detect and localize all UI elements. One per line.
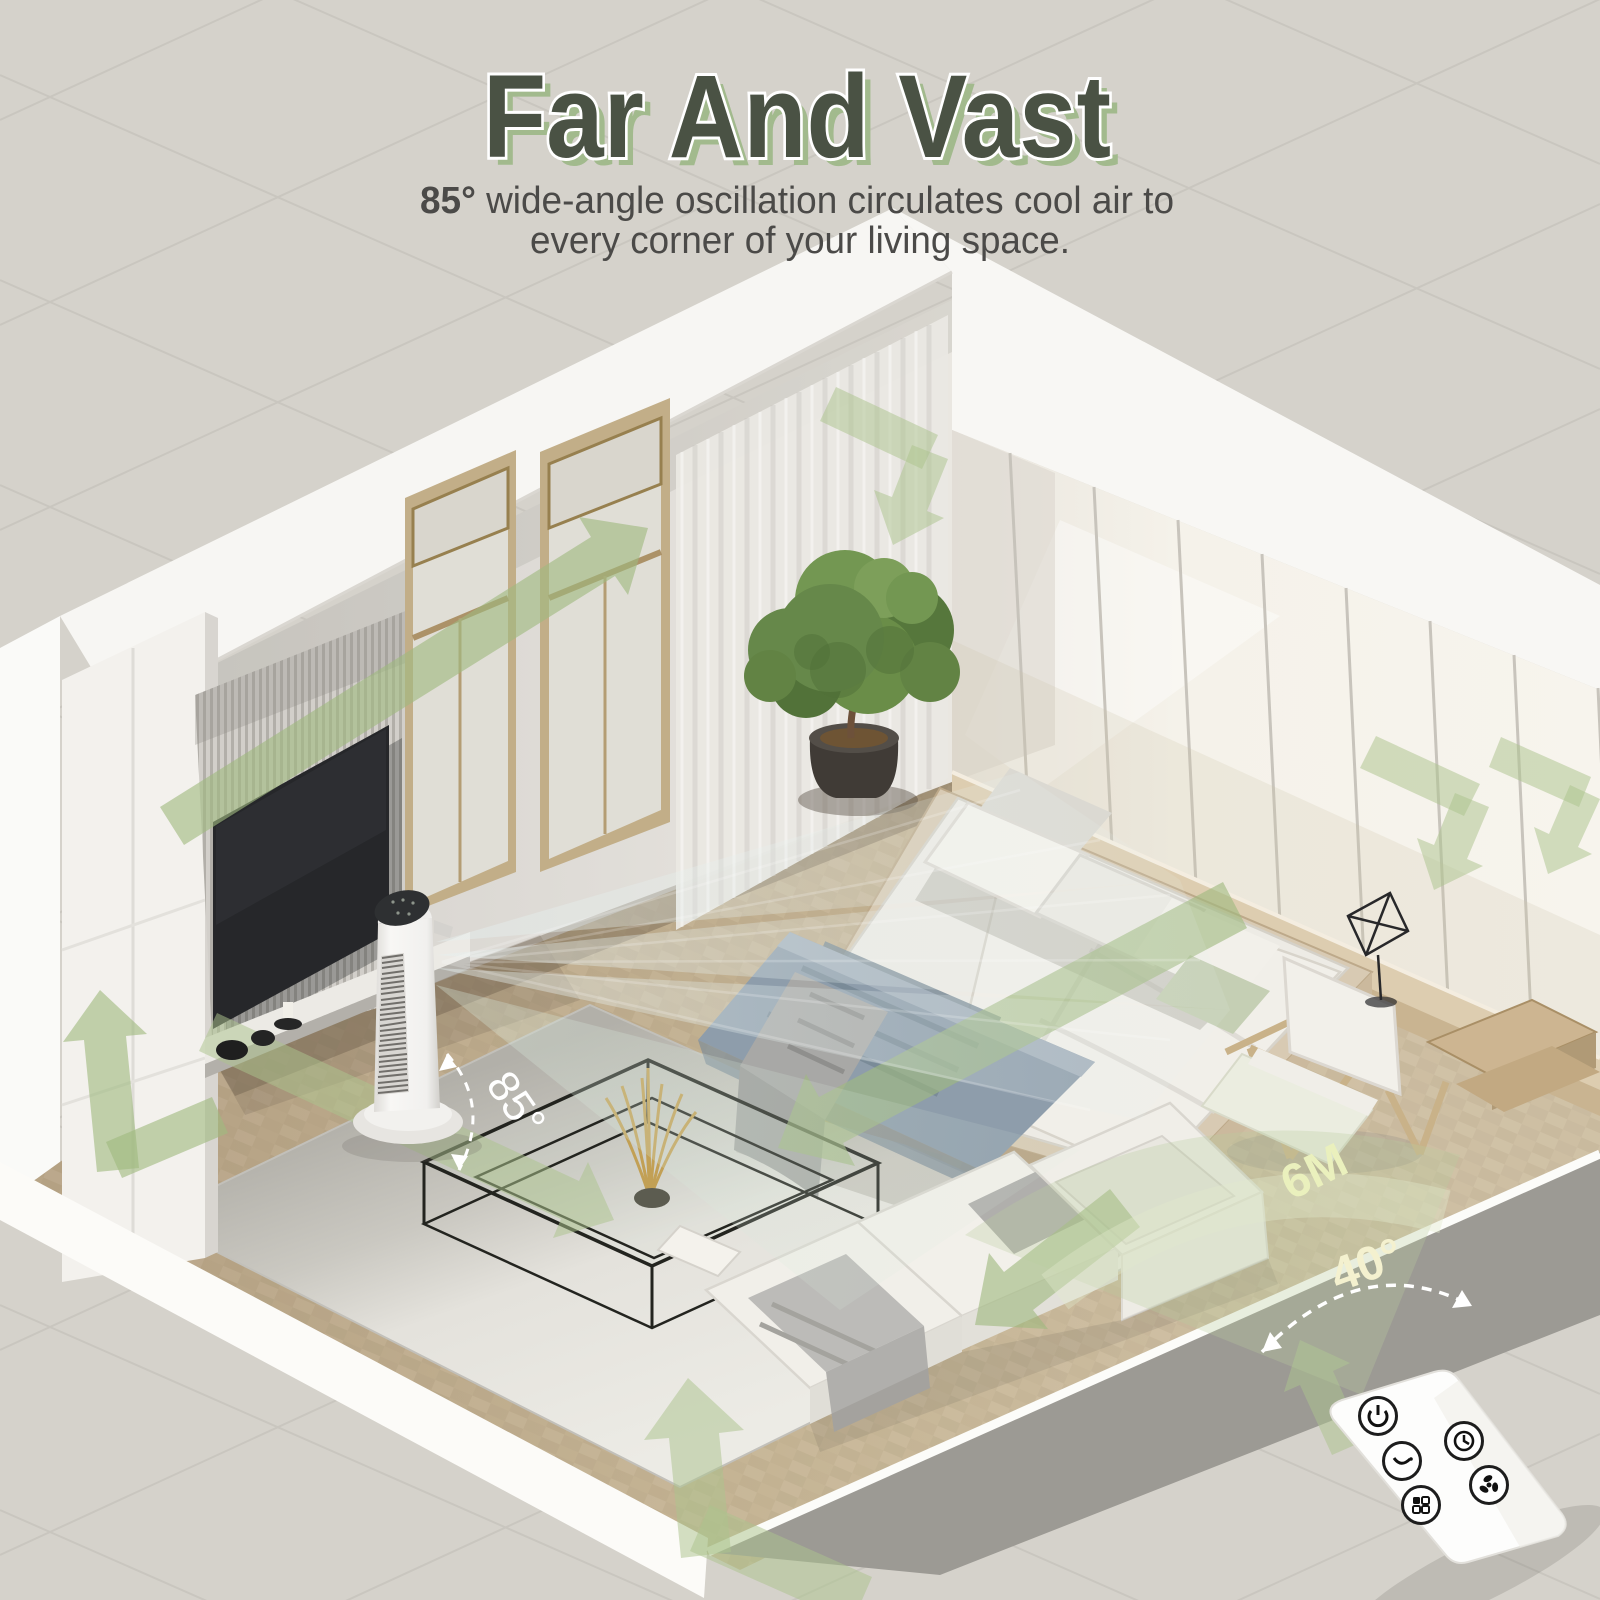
svg-text:every corner of your living sp: every corner of your living space.	[530, 220, 1070, 262]
svg-text:85° wide-angle oscillation cir: 85° wide-angle oscillation circulates co…	[420, 180, 1174, 222]
svg-text:Far And Vast: Far And Vast	[483, 51, 1111, 183]
